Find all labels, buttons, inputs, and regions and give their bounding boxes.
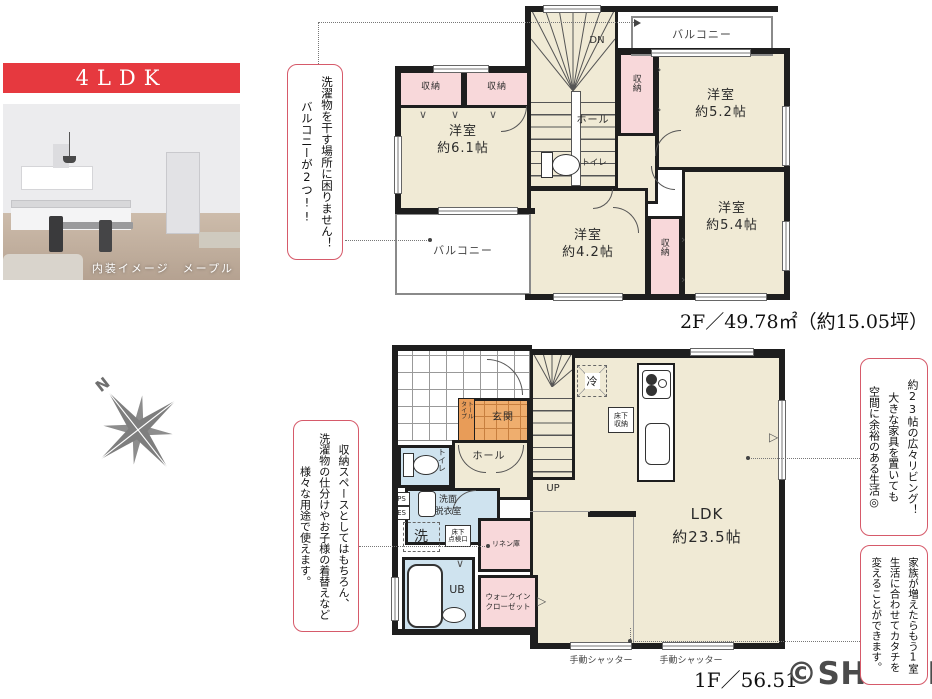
wall	[779, 349, 785, 649]
callout-line: 洗濯物の仕分けやお子様の着替えなど	[315, 429, 334, 623]
connector-dot	[428, 238, 432, 242]
washroom-label: 洗面 脱衣室	[420, 495, 476, 518]
window	[651, 49, 751, 57]
stairs-dn-label: DN	[581, 34, 613, 47]
closet-door-mark: ›	[681, 274, 685, 285]
burner	[646, 385, 657, 396]
floorplan-page: { "badge": "4LDK", "photo": { "caption":…	[0, 0, 932, 699]
closet-label: 収納	[467, 82, 527, 94]
window	[695, 293, 767, 301]
toilet-1f-label: トイレ	[436, 448, 446, 472]
bath-label: UB	[440, 583, 474, 597]
callout-line: 約23帖の広々リビング！	[903, 367, 922, 527]
wall	[392, 629, 538, 635]
shutter-label: 手動シャッター	[556, 656, 646, 668]
photo-tv-board	[199, 232, 240, 248]
bath-door-mark: ∨	[456, 558, 464, 569]
photo-upper-cabinet	[21, 166, 93, 190]
wall	[525, 6, 531, 72]
callout-living: 約23帖の広々リビング！ 大きな家具を置いても 空間に余裕のある生活◎	[860, 358, 928, 536]
connector-line	[345, 240, 429, 241]
bathtub-icon	[407, 564, 443, 628]
plan-type-badge: 4LDK	[3, 63, 240, 93]
partition-line	[633, 517, 634, 643]
closet-label: 収納	[401, 82, 461, 94]
closet-door-mark: ∨	[451, 109, 459, 120]
hall-1f-label: ホール	[454, 450, 524, 463]
wic-label: ウォークイン クローゼット	[479, 592, 537, 612]
wall	[588, 511, 636, 517]
photo-sofa	[3, 254, 83, 280]
window	[662, 642, 734, 650]
closet-label: 収納	[629, 74, 641, 92]
callout-line: 収納スペースとしてはもちろん、	[334, 429, 353, 623]
closet-label: 収納	[657, 238, 669, 256]
callout-line: 空間に余裕のある生活◎	[864, 367, 883, 527]
callout-line: バルコニーが2つ!!	[297, 73, 317, 251]
sink-icon	[645, 423, 670, 465]
burner	[646, 374, 657, 385]
photo-chair-1	[49, 216, 63, 252]
closet-door-mark: ›	[657, 104, 661, 115]
connector-arrow	[634, 19, 641, 27]
connector-line	[630, 641, 860, 642]
hall-2f-label: ホール	[553, 114, 633, 127]
callout-balcony: 洗濯物を干す場所に困りません！ バルコニーが2つ!!	[287, 64, 343, 260]
stairs-1f	[530, 350, 575, 480]
washer-label: 洗	[414, 528, 429, 546]
connector-line	[359, 546, 487, 547]
callout-storage: 収納スペースとしてはもちろん、 洗濯物の仕分けやお子様の着替えなど 様々な用途で…	[293, 420, 359, 632]
callout-line: 洗濯物を干す場所に困りません！	[317, 73, 337, 251]
compass-north-letter: N	[92, 374, 113, 396]
photo-caption: 内装イメージ メープル	[92, 260, 234, 276]
window	[438, 207, 518, 215]
closet-2f-mid	[648, 216, 682, 300]
bath-stool-icon	[442, 607, 466, 623]
callout-line: 生活に合わせてカタチを	[885, 554, 903, 676]
photo-pendant-light	[69, 132, 70, 158]
room-42-label: 洋室 約4.2帖	[533, 228, 643, 262]
closet-door-mark: ›	[657, 64, 661, 75]
closet-door-mark: ›	[681, 234, 685, 245]
floor2-plan: ∨ ∨ ∨ › › › › 洋室 約6.1帖 洋室 約5.2帖 洋室 約4.2帖…	[393, 6, 793, 304]
stove-icon	[642, 370, 671, 399]
callout-line: 大きな家具を置いても	[884, 367, 903, 527]
floor2-area-label: 2F／49.78㎡（約15.05坪）	[560, 307, 928, 334]
connector-line	[318, 22, 634, 23]
window	[690, 348, 754, 356]
room-61-label: 洋室 約6.1帖	[413, 124, 513, 158]
wall	[530, 643, 785, 649]
underfloor-inspection: 床下 点検口	[445, 525, 471, 547]
fridge-label: 冷	[585, 373, 600, 389]
interior-photo: 内装イメージ メープル	[3, 104, 240, 280]
callout-line: 家族が増えたらもう1室	[904, 554, 922, 676]
photo-counter	[11, 200, 131, 208]
photo-chair-2	[99, 220, 112, 252]
burner	[658, 379, 667, 388]
connector-line	[748, 458, 860, 459]
window	[782, 106, 790, 166]
balcony-top-label: バルコニー	[641, 28, 763, 42]
callout-flex: 家族が増えたらもう1室 生活に合わせてカタチを 変えることができます。	[860, 545, 928, 685]
window	[394, 136, 402, 194]
connector-dot	[628, 639, 632, 643]
stair-treads	[533, 387, 572, 477]
window	[543, 5, 601, 13]
connector-line	[318, 22, 319, 64]
room-54-label: 洋室 約5.4帖	[682, 201, 782, 235]
window	[391, 577, 399, 621]
window	[782, 221, 790, 271]
window	[433, 65, 489, 73]
window	[778, 400, 786, 480]
partition-line	[530, 511, 590, 512]
compass-rose: N	[78, 368, 198, 488]
balcony-side-label: バルコニー	[403, 244, 523, 258]
photo-pendant-shade	[63, 156, 76, 163]
callout-line: 様々な用途で使えます。	[295, 429, 314, 623]
underfloor-storage: 床下 収納	[608, 407, 634, 433]
window	[553, 293, 623, 301]
photo-door	[166, 152, 200, 234]
genkan-label: 玄関	[476, 411, 530, 424]
connector-dot	[746, 456, 750, 460]
photo-table	[61, 222, 133, 229]
washer-space: 洗	[403, 522, 440, 552]
callout-line: 変えることができます。	[867, 554, 885, 676]
wic-door-mark: ▷	[537, 595, 546, 607]
closet-door-mark: ∨	[419, 109, 427, 120]
connector-dot	[486, 544, 490, 548]
stairs-up-label: UP	[536, 482, 570, 495]
floor1-plan: 冷 床下 収納 洗 床下 点検口 PS ES ∨ ▷ ▷ 玄関 トール タイプ …	[390, 345, 790, 675]
ldk-label: LDK 約23.5帖	[647, 503, 767, 548]
shoebox-label: トール タイプ	[459, 401, 472, 419]
closet-door-mark: ∨	[489, 109, 497, 120]
floor1-area-label: 1F／56.51	[694, 664, 798, 693]
room-52-label: 洋室 約5.2帖	[666, 88, 776, 122]
wall	[392, 345, 532, 351]
refrigerator-space: 冷	[577, 365, 607, 397]
window	[570, 642, 632, 650]
ldk-window-mark: ▷	[769, 431, 778, 443]
toilet-2f-label: トイレ	[575, 158, 613, 169]
